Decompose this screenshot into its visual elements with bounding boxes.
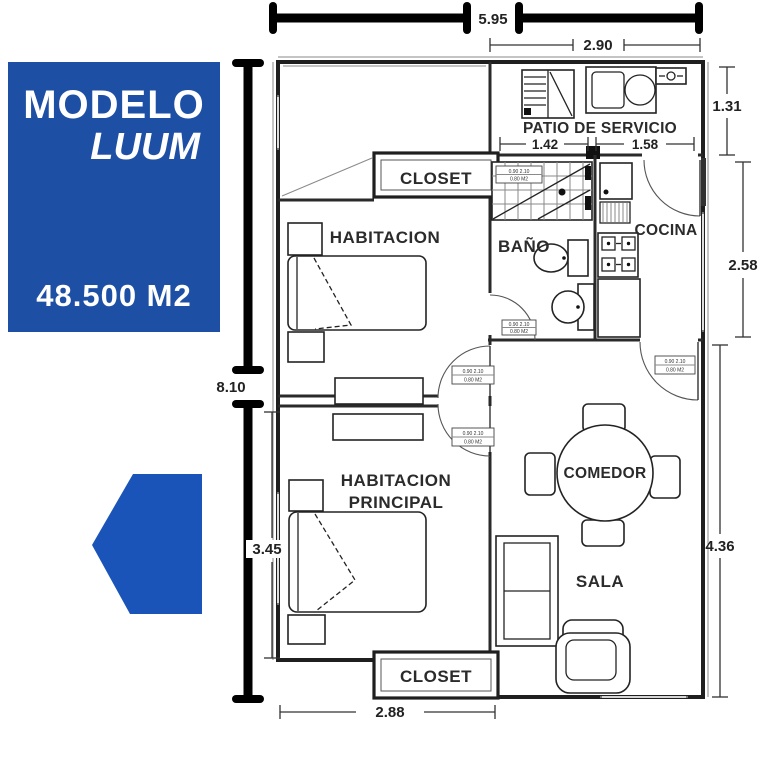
laundry-sink-icon [586,67,656,113]
bed-icon [289,512,426,612]
spec-tag: 0.90 2.10 0.80 M2 [655,356,695,374]
svg-text:0.90 2.10: 0.90 2.10 [463,431,484,437]
sala-furniture [496,536,630,693]
counter-icon [598,279,640,337]
left-arrow-icon [92,474,202,614]
bano-label: BAÑO [498,236,550,256]
spec-tag: 0.90 2.10 0.80 M2 [452,428,494,446]
armchair-icon [556,620,630,693]
svg-text:0.80 M2: 0.80 M2 [464,378,482,384]
dim-sala-height: 4.36 [705,538,734,555]
dresser-icon [333,414,423,440]
habitacion-furniture [288,223,426,404]
cocina-fixtures [598,163,640,337]
nightstand-icon [289,480,323,511]
patio-fixtures [522,67,686,118]
sofa-icon [496,536,558,646]
bed-icon [288,256,426,330]
door-cocina [644,160,700,216]
closet-bottom: CLOSET [374,652,498,698]
comedor-label: COMEDOR [563,465,646,482]
spec-tag: 0.90 2.10 0.80 M2 [502,320,536,335]
nightstand-icon [288,615,325,644]
closet-bottom-label: CLOSET [400,667,472,686]
vent-icon [656,68,686,84]
chair-icon [582,520,624,546]
chair-icon [650,456,680,498]
nightstand-icon [288,332,324,362]
svg-text:0.90 2.10: 0.90 2.10 [463,369,484,375]
sink-icon [552,284,594,330]
svg-text:0.80 M2: 0.80 M2 [464,440,482,446]
svg-text:0.90 2.10: 0.90 2.10 [665,359,686,365]
floorplan-screenshot: MODELO LUUM 48.500 M2 [0,0,768,768]
dim-top-width: 5.95 [478,11,507,28]
washer-icon [522,70,574,118]
spec-tag: 0.90 2.10 0.80 M2 [496,166,542,183]
cocina-label: COCINA [635,222,698,239]
closet-top: CLOSET [374,153,498,197]
svg-text:0.90 2.10: 0.90 2.10 [509,322,530,328]
nightstand-icon [288,223,322,255]
comedor-furniture: COMEDOR [525,404,680,546]
principal-furniture [288,414,426,644]
floorplan-svg: CLOSET CLOSET [0,0,768,768]
dim-total-height: 8.10 [216,379,245,396]
stove-icon [598,233,638,277]
chair-icon [525,453,555,495]
closet-top-label: CLOSET [400,169,472,188]
sala-label: SALA [576,572,624,591]
spec-tag: 0.90 2.10 0.80 M2 [452,366,494,384]
dim-patio-split-right: 1.58 [632,137,659,152]
dim-principal-height: 3.45 [252,541,281,558]
fridge-icon [600,163,632,223]
dim-patio-width: 2.90 [583,37,612,54]
dim-cocina-height: 2.58 [728,257,757,274]
svg-text:0.80 M2: 0.80 M2 [666,368,684,374]
patio-label: PATIO DE SERVICIO [523,120,677,137]
svg-text:0.90 2.10: 0.90 2.10 [509,169,530,175]
dresser-icon [335,378,423,404]
principal-label-1: HABITACION [341,471,451,490]
svg-text:0.80 M2: 0.80 M2 [510,177,528,183]
principal-label-2: PRINCIPAL [349,493,444,512]
dim-patio-height: 1.31 [712,98,741,115]
habitacion-label: HABITACION [330,228,440,247]
dim-bottom-width: 2.88 [375,704,404,721]
dim-patio-split-left: 1.42 [532,137,558,152]
svg-text:0.80 M2: 0.80 M2 [510,329,528,335]
